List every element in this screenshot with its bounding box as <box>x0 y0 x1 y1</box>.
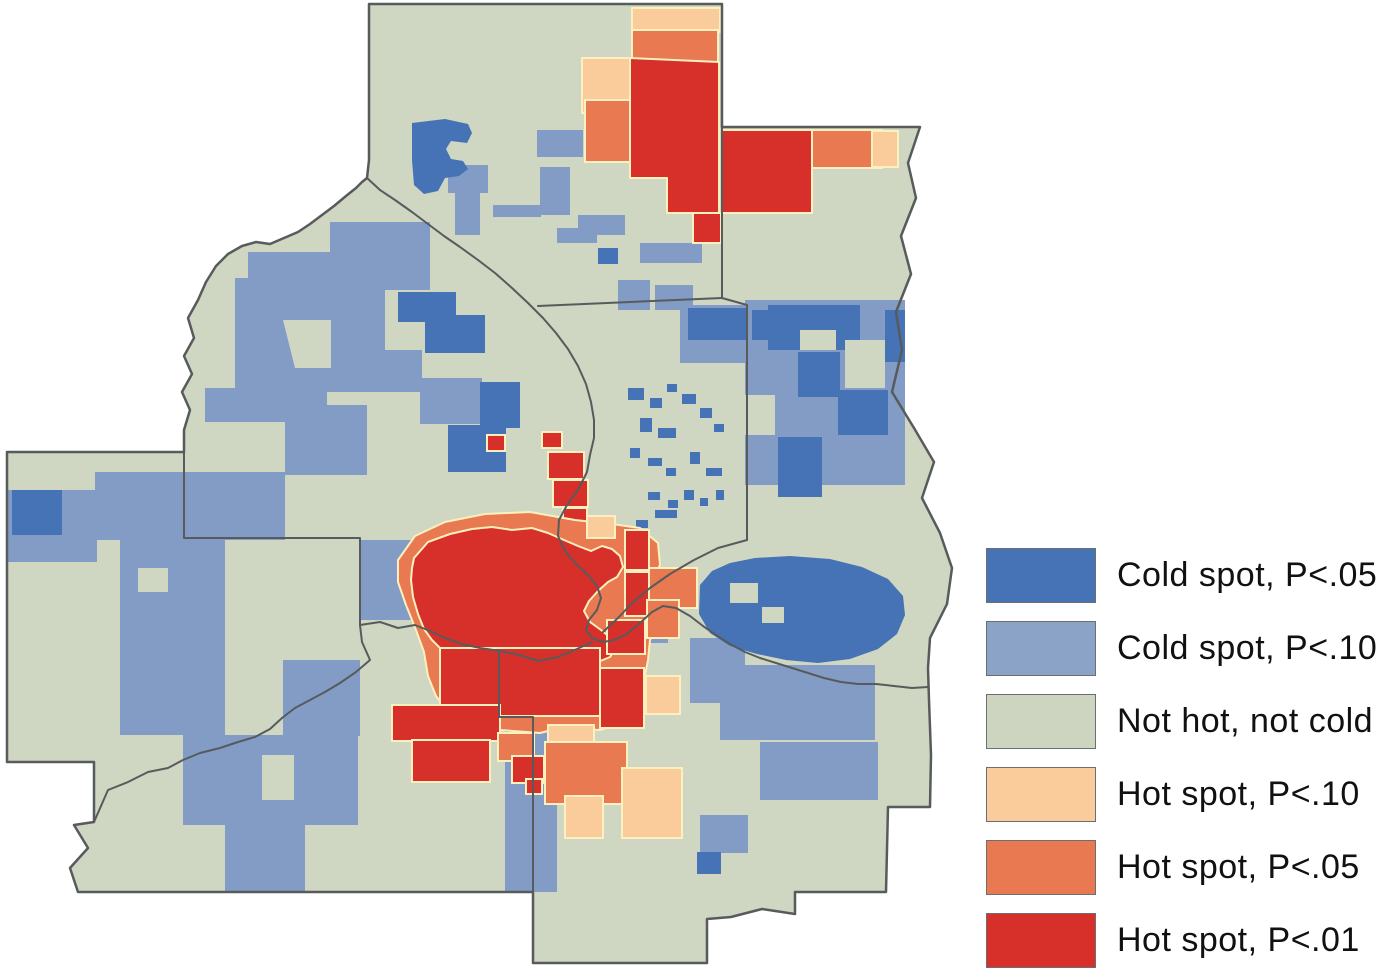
region-hot01 <box>607 620 645 654</box>
region-hot01 <box>722 130 812 213</box>
legend-swatch-cold05 <box>986 548 1096 603</box>
region-cold10 <box>420 378 482 424</box>
region-cold05 <box>697 852 721 874</box>
region-cold05 <box>640 418 652 432</box>
legend-item-cold05: Cold spot, P<.05 <box>986 548 1396 603</box>
region-cold05 <box>648 458 662 466</box>
region-hot05 <box>545 742 627 804</box>
region-hot01 <box>553 480 588 507</box>
region-cold05 <box>684 490 694 500</box>
region-cold10 <box>283 660 360 736</box>
region-hot01 <box>487 435 505 451</box>
region-hot01 <box>693 213 721 243</box>
region-cold05 <box>690 452 700 464</box>
legend-label: Cold spot, P<.05 <box>1096 556 1377 595</box>
region-hot10 <box>872 131 898 167</box>
region-neutral <box>138 568 168 592</box>
region-cold10 <box>120 540 225 735</box>
region-cold05 <box>706 468 722 476</box>
region-hot10 <box>632 8 720 32</box>
region-cold10 <box>700 815 748 853</box>
region-neutral <box>730 583 758 603</box>
region-cold10 <box>595 215 625 235</box>
legend-item-hot01: Hot spot, P<.01 <box>986 913 1396 968</box>
region-cold10 <box>720 665 875 740</box>
region-cold10 <box>540 167 570 215</box>
region-cold05 <box>667 384 677 392</box>
region-hot10 <box>565 796 603 838</box>
legend-label: Hot spot, P<.10 <box>1096 775 1360 814</box>
region-hot01 <box>625 530 649 570</box>
region-hot10 <box>622 768 682 838</box>
region-cold05 <box>838 390 888 435</box>
region-hot05 <box>585 100 633 162</box>
region-cold05 <box>658 428 676 438</box>
region-cold10 <box>330 350 422 392</box>
region-hot01 <box>392 705 500 741</box>
legend-label: Not hot, not cold <box>1096 702 1373 741</box>
region-cold10 <box>462 217 478 233</box>
hotspot-map <box>0 0 975 973</box>
region-neutral <box>745 395 775 435</box>
region-cold05 <box>668 500 678 508</box>
region-hot01 <box>548 452 584 479</box>
region-neutral <box>800 330 836 350</box>
region-cold05 <box>628 388 644 400</box>
legend-label: Hot spot, P<.05 <box>1096 848 1360 887</box>
region-cold05 <box>700 408 712 418</box>
legend-swatch-neutral <box>986 694 1096 749</box>
region-cold05 <box>752 310 802 340</box>
legend-item-neutral: Not hot, not cold <box>986 694 1396 749</box>
region-cold10 <box>618 280 650 310</box>
region-cold05 <box>425 315 485 353</box>
region-neutral <box>845 340 885 388</box>
figure: Cold spot, P<.05 Cold spot, P<.10 Not ho… <box>0 0 1400 973</box>
region-cold05 <box>682 394 696 404</box>
region-hot01 <box>542 432 562 448</box>
region-cold10 <box>537 130 583 157</box>
legend-item-hot10: Hot spot, P<.10 <box>986 767 1396 822</box>
region-hot01 <box>625 572 649 616</box>
region-cold05 <box>714 424 724 432</box>
legend-swatch-cold10 <box>986 621 1096 676</box>
region-cold05 <box>12 490 62 535</box>
region-cold05 <box>630 448 640 458</box>
legend-swatch-hot05 <box>986 840 1096 895</box>
legend: Cold spot, P<.05 Cold spot, P<.10 Not ho… <box>986 548 1396 973</box>
region-hot01 <box>412 740 490 782</box>
region-cold05 <box>650 398 662 408</box>
region-cold05 <box>716 490 724 500</box>
region-cold05 <box>598 248 618 264</box>
region-cold10 <box>225 825 305 892</box>
legend-swatch-hot10 <box>986 767 1096 822</box>
region-hot10 <box>587 516 615 538</box>
region-cold05 <box>688 308 746 340</box>
legend-swatch-hot01 <box>986 913 1096 968</box>
region-cold05 <box>700 498 708 506</box>
region-hot01 <box>600 668 644 728</box>
region-cold05 <box>655 510 677 518</box>
legend-item-cold10: Cold spot, P<.10 <box>986 621 1396 676</box>
legend-label: Cold spot, P<.10 <box>1096 629 1377 668</box>
legend-label: Hot spot, P<.01 <box>1096 921 1360 960</box>
region-cold05 <box>480 382 520 428</box>
region-cold05 <box>798 352 840 397</box>
region-cold10 <box>95 472 285 540</box>
region-cold10 <box>285 405 367 475</box>
region-cold10 <box>493 205 541 217</box>
region-cold05 <box>648 492 660 500</box>
region-cold10 <box>760 742 878 800</box>
region-neutral <box>762 607 784 623</box>
region-cold10 <box>640 243 702 263</box>
region-neutral <box>262 755 294 800</box>
region-cold05 <box>666 468 676 476</box>
region-hot10 <box>646 676 680 714</box>
legend-item-hot05: Hot spot, P<.05 <box>986 840 1396 895</box>
region-cold05 <box>778 437 822 497</box>
